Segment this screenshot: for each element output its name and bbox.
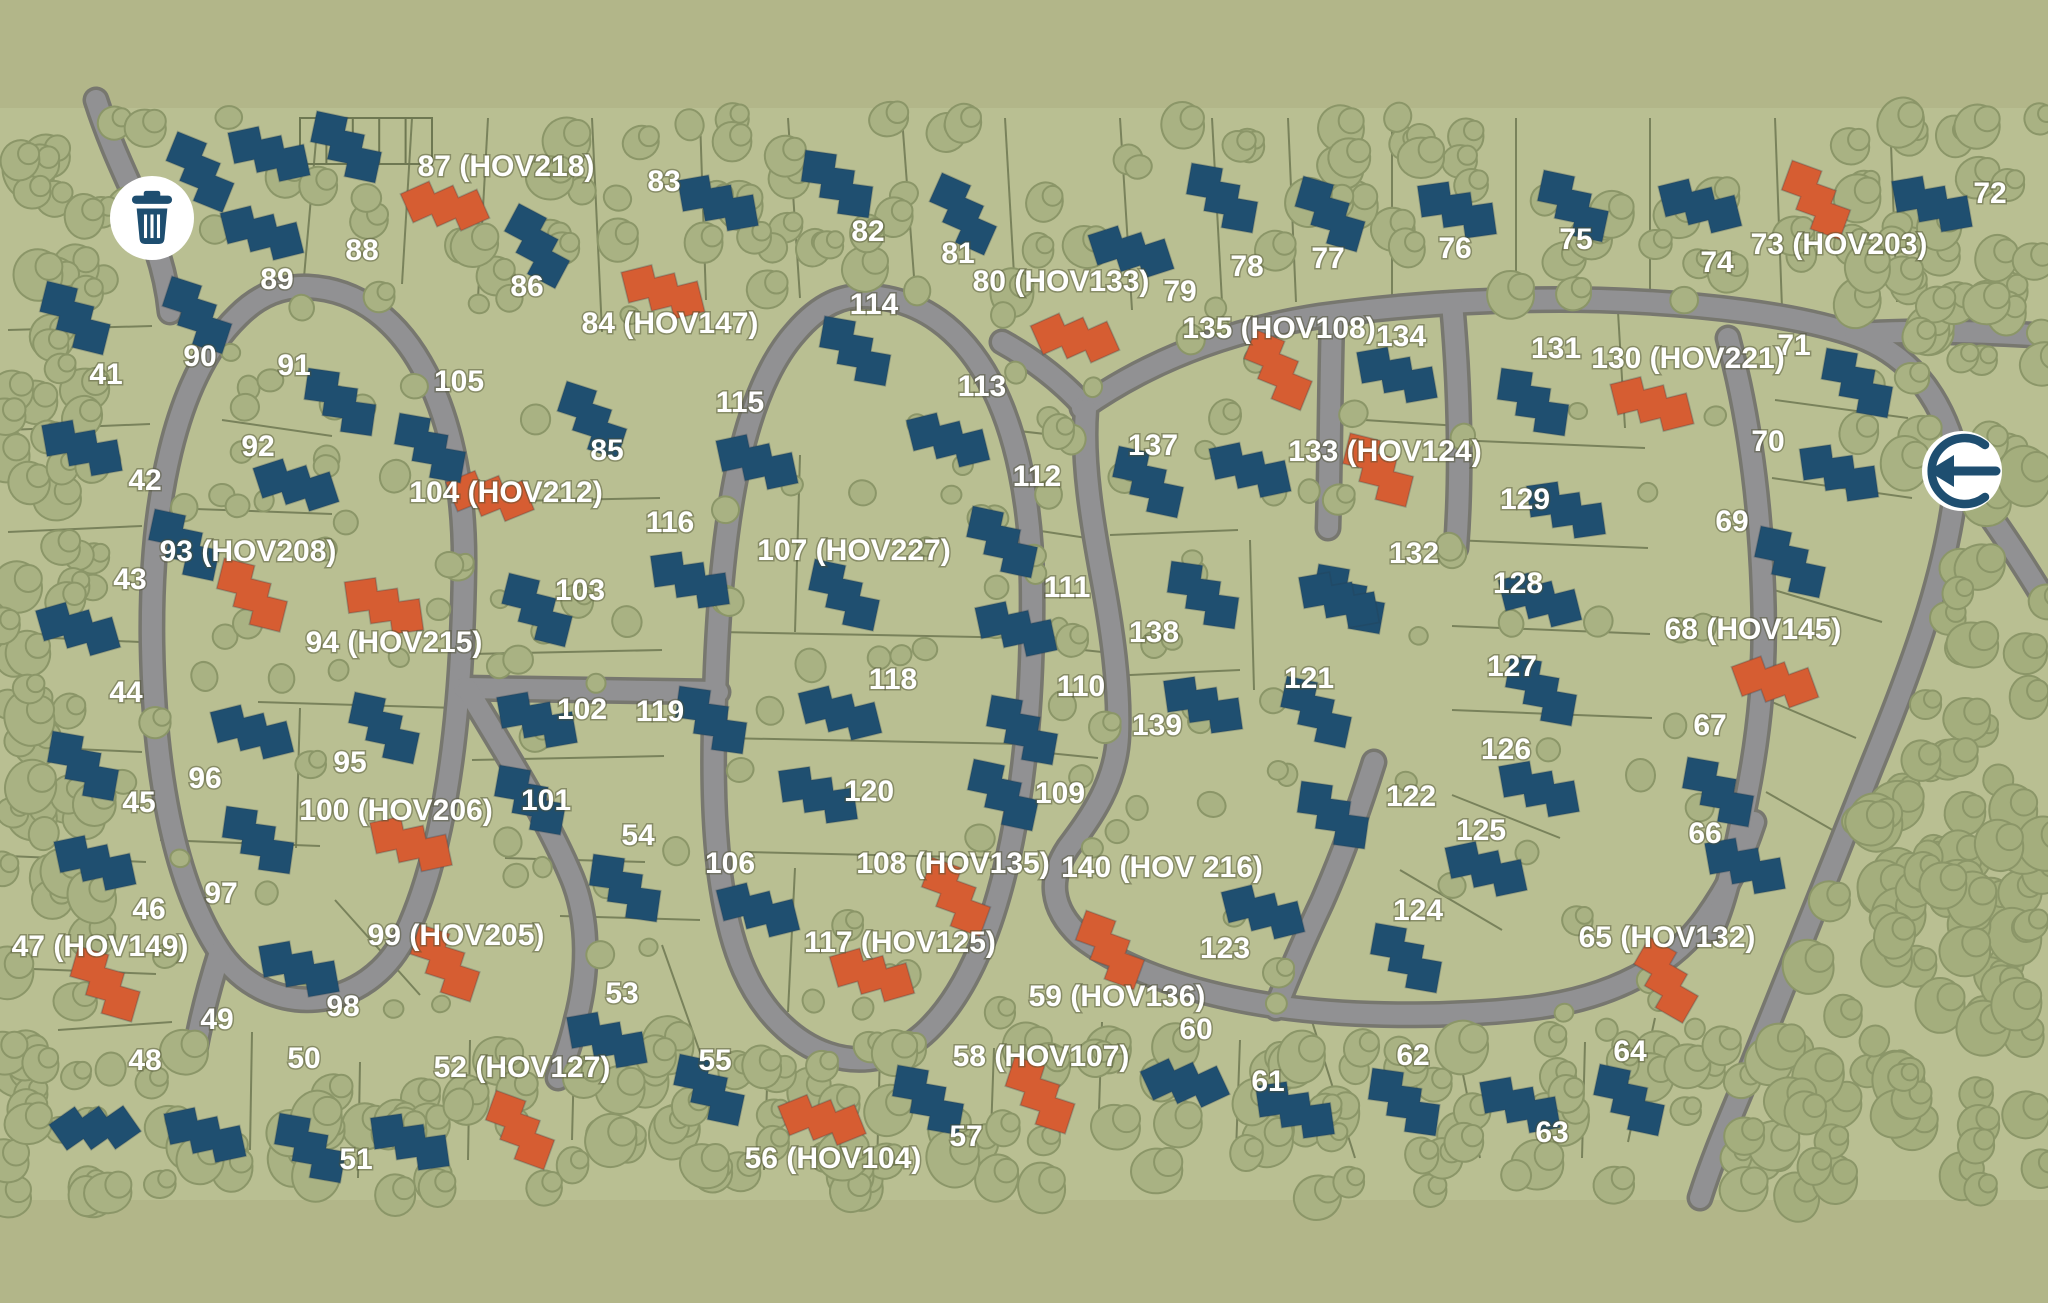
lot-label: 45 (122, 786, 155, 819)
tree (333, 510, 359, 535)
lot-label: 138 (1129, 616, 1179, 649)
lot-label: 90 (183, 340, 216, 373)
tree (1964, 1173, 1997, 1206)
lot-label: 60 (1179, 1013, 1212, 1046)
tree (990, 302, 1015, 329)
tree (1625, 758, 1655, 792)
lot-label: 125 (1456, 814, 1506, 847)
lot-label: 84 (HOV147) (582, 307, 759, 340)
lot-label: 111 (1044, 571, 1091, 604)
tree (351, 184, 382, 213)
tree (1910, 690, 1941, 719)
tree (1963, 282, 2011, 325)
lot-label: 115 (716, 386, 764, 419)
lot-label: 57 (949, 1120, 982, 1153)
lot-label: 94 (HOV215) (306, 626, 483, 659)
tree (1824, 995, 1862, 1037)
site-plan-svg: Residential community site plan map 4142… (0, 0, 2048, 1303)
lot-label: 49 (200, 1003, 233, 1036)
tree (215, 105, 243, 129)
lot-label: 73 (HOV203) (1751, 228, 1928, 261)
lot-label: 54 (621, 819, 655, 852)
lot-label: 83 (647, 165, 680, 198)
lot-label: 42 (128, 464, 161, 497)
lot-label: 51 (339, 1143, 372, 1176)
tree (1262, 957, 1295, 988)
tree (83, 1172, 132, 1214)
lot-label: 78 (1230, 250, 1263, 283)
lot-label: 81 (941, 237, 974, 270)
tree (1670, 287, 1698, 314)
lot-label: 112 (1013, 460, 1061, 493)
lot-label: 67 (1693, 709, 1726, 742)
lot-label: 139 (1132, 709, 1182, 742)
lot-label: 86 (510, 270, 543, 303)
lot-label: 128 (1493, 567, 1543, 600)
lot-label: 133 (HOV124) (1288, 435, 1481, 468)
lot-label: 69 (1715, 505, 1748, 538)
lot-label: 108 (HOV135) (856, 847, 1049, 880)
lot-label: 121 (1284, 662, 1334, 695)
lot-label: 130 (HOV221) (1591, 342, 1784, 375)
lot-label: 106 (705, 847, 755, 880)
tree (1919, 862, 1967, 909)
lot-label: 116 (646, 506, 694, 539)
lot-label: 109 (1035, 777, 1085, 810)
tree (374, 1173, 416, 1217)
tree (941, 486, 961, 504)
lot-label: 97 (204, 877, 237, 910)
lot-label: 53 (605, 977, 638, 1010)
tree (1022, 232, 1054, 268)
lot-label: 65 (HOV132) (1579, 921, 1756, 954)
lot-label: 113 (958, 370, 1006, 403)
trash-icon[interactable] (110, 176, 194, 260)
tree (1637, 482, 1657, 502)
lot-label: 122 (1386, 780, 1436, 813)
tree (685, 222, 723, 262)
lot-label: 132 (1389, 537, 1439, 570)
tree (426, 598, 450, 620)
lot-label: 82 (851, 215, 884, 248)
lot-label: 52 (HOV127) (434, 1051, 611, 1084)
tree (1638, 229, 1672, 260)
lot-label: 48 (128, 1044, 161, 1077)
lot-label: 76 (1438, 232, 1471, 265)
tree (713, 122, 752, 161)
lot-label: 59 (HOV136) (1029, 980, 1206, 1013)
lot-label: 114 (850, 288, 899, 321)
lot-label: 104 (HOV212) (409, 476, 602, 509)
lot-label: 110 (1057, 670, 1105, 703)
tree (1398, 137, 1444, 178)
tree (1536, 737, 1561, 762)
lot-label: 140 (HOV 216) (1061, 851, 1263, 884)
lot-label: 129 (1500, 483, 1550, 516)
lot-label: 105 (434, 365, 484, 398)
tree (586, 674, 605, 693)
lot-label: 66 (1688, 817, 1721, 850)
lot-label: 96 (188, 762, 221, 795)
lot-label: 50 (287, 1042, 320, 1075)
tree (2003, 633, 2048, 675)
tree (143, 1170, 176, 1199)
lot-label: 41 (89, 358, 122, 391)
lot-label: 74 (1700, 246, 1734, 279)
tree (503, 646, 533, 674)
lot-label: 89 (260, 263, 293, 296)
lot-label: 93 (HOV208) (160, 535, 337, 568)
lot-label: 85 (590, 434, 623, 467)
site-plan-map: Residential community site plan map 4142… (0, 0, 2048, 1303)
lot-label: 63 (1535, 1116, 1568, 1149)
tree (1298, 479, 1320, 503)
lot-label: 80 (HOV133) (973, 265, 1150, 298)
lot-label: 123 (1200, 932, 1250, 965)
tree (383, 999, 404, 1018)
lot-label: 99 (HOV205) (368, 919, 545, 952)
lot-label: 100 (HOV206) (299, 794, 492, 827)
lot-label: 55 (698, 1044, 731, 1077)
lot-label: 77 (1311, 242, 1344, 275)
lot-label: 98 (326, 990, 359, 1023)
lot-label: 88 (345, 234, 378, 267)
lot-label: 70 (1751, 425, 1784, 458)
tree (520, 403, 551, 435)
lot-label: 124 (1393, 894, 1443, 927)
lot-label: 103 (555, 574, 605, 607)
tree (295, 751, 326, 779)
lot-label: 58 (HOV107) (953, 1040, 1130, 1073)
lot-label: 134 (1376, 320, 1426, 353)
lot-label: 102 (557, 693, 607, 726)
lot-label: 120 (844, 775, 894, 808)
lot-label: 107 (HOV227) (757, 534, 950, 567)
lot-label: 56 (HOV104) (745, 1142, 922, 1175)
lot-label: 137 (1128, 429, 1178, 462)
tree (1724, 1117, 1765, 1155)
lot-label: 64 (1613, 1035, 1647, 1068)
lot-label: 118 (869, 663, 917, 696)
tree (984, 575, 1009, 600)
lot-label: 95 (333, 746, 366, 779)
lot-label: 62 (1396, 1039, 1429, 1072)
lot-label: 75 (1559, 223, 1592, 256)
lot-label: 101 (521, 784, 571, 817)
lot-label: 43 (113, 563, 146, 596)
lot-label: 131 (1531, 332, 1581, 365)
lot-label: 135 (HOV108) (1182, 312, 1375, 345)
lot-label: 119 (636, 695, 684, 728)
lot-label: 87 (HOV218) (418, 150, 595, 183)
tree (1089, 711, 1121, 743)
lot-label: 79 (1163, 275, 1196, 308)
lot-label: 68 (HOV145) (1665, 613, 1842, 646)
lot-label: 47 (HOV149) (12, 930, 189, 963)
lot-label: 44 (109, 676, 143, 709)
tree (597, 218, 638, 262)
lot-label: 92 (241, 430, 274, 463)
lot-label: 126 (1481, 733, 1531, 766)
entrance-arrow-icon[interactable] (1922, 431, 2002, 511)
lot-label: 91 (277, 349, 310, 382)
lot-label: 46 (132, 893, 165, 926)
lot-label: 127 (1487, 650, 1537, 683)
lot-label: 61 (1251, 1065, 1284, 1098)
lot-label: 72 (1973, 177, 2006, 210)
lot-label: 117 (HOV125) (804, 926, 996, 959)
tree (1880, 435, 1930, 491)
